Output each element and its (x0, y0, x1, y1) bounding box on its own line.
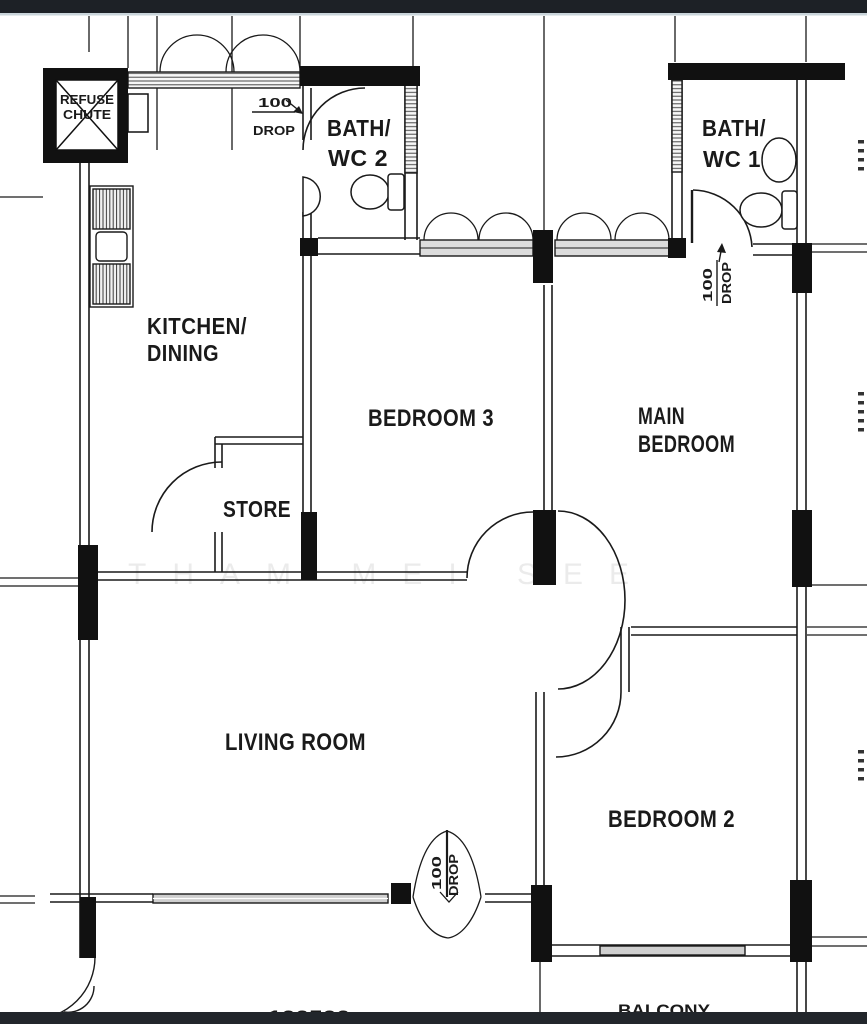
svg-text:100: 100 (258, 96, 292, 110)
refuse-chute-label2: CHUTE (63, 107, 111, 122)
living-room-label: LIVING ROOM (225, 729, 366, 756)
floor-plan-drawing: THAM MEI SEE (0, 0, 867, 1024)
bedroom2-label: BEDROOM 2 (608, 806, 735, 833)
bath2-toilet-tank (388, 174, 404, 210)
kitchen-label: KITCHEN/ (147, 313, 247, 339)
kitchen-counter (90, 186, 133, 307)
bath2-label: BATH/ (327, 115, 391, 141)
svg-text:100: 100 (701, 268, 715, 302)
bath1-basin (762, 138, 796, 182)
bedroom2-window (600, 946, 745, 955)
bath1-label: BATH/ (702, 115, 766, 141)
bath1-toilet-tank (782, 191, 797, 229)
svg-text:DROP: DROP (447, 854, 461, 896)
top-bar-edge (0, 13, 867, 16)
bath1-top-wall (668, 63, 845, 80)
floor-plan-screenshot: THAM MEI SEE (0, 0, 867, 1024)
bath2-top-wall (300, 66, 420, 86)
bath2-toilet-bowl (351, 175, 389, 209)
chute-hopper (128, 94, 148, 132)
main-bedroom-label2: BEDROOM (638, 431, 735, 458)
bath2-vent-shaft (405, 85, 417, 173)
entrance-door-band (128, 72, 300, 88)
bath1-vent-shaft (672, 80, 682, 172)
bath1-label2: WC 1 (703, 146, 761, 172)
main-bedroom-label: MAIN (638, 403, 685, 430)
svg-text:DROP: DROP (253, 124, 295, 138)
watermark-text: THAM MEI SEE (128, 558, 655, 591)
bottom-bar (0, 1012, 867, 1024)
bedroom3-label: BEDROOM 3 (368, 405, 494, 432)
bath1-toilet-bowl (740, 193, 782, 227)
store-label: STORE (223, 496, 291, 522)
top-bar (0, 0, 867, 13)
bath2-label2: WC 2 (328, 145, 388, 171)
kitchen-label2: DINING (147, 340, 219, 366)
svg-text:100: 100 (430, 856, 444, 890)
svg-text:DROP: DROP (720, 262, 734, 304)
refuse-chute-label: REFUSE (60, 92, 114, 107)
kitchen-sink (96, 232, 127, 261)
